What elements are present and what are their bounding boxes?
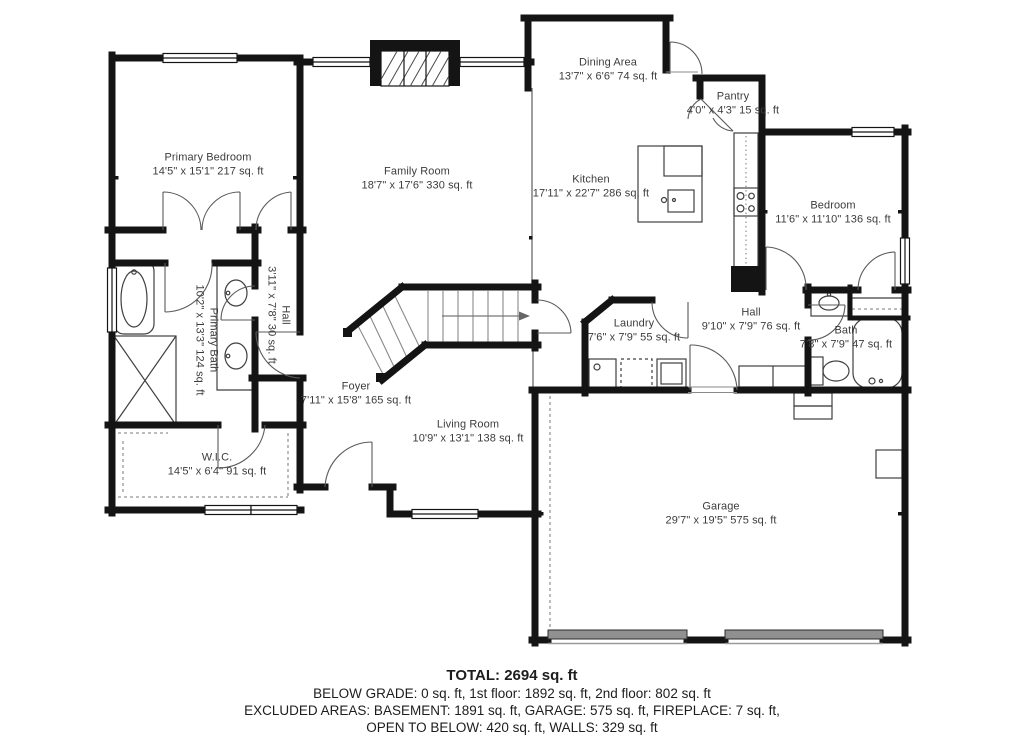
room-dims: 17'11" x 22'7" 286 sq. ft bbox=[533, 187, 649, 201]
room-label-hall-left: Hall 3'11" x 7'8" 30 sq. ft bbox=[265, 266, 292, 364]
fireplace-icon bbox=[370, 40, 466, 90]
room-dims: 4'0" x 4'3" 15 sq. ft bbox=[687, 104, 779, 118]
hall-bench-icon bbox=[739, 366, 807, 387]
room-dims: 9'10" x 7'9" 76 sq. ft bbox=[702, 320, 801, 334]
room-label-foyer: Foyer 7'11" x 15'8" 165 sq. ft bbox=[301, 381, 411, 408]
floorplan-page: Dining Area 13'7" x 6'6" 74 sq. ft Pantr… bbox=[0, 0, 1024, 738]
room-label-primary-bath: Primary Bath 10'2" x 13'3" 124 sq. ft bbox=[193, 284, 220, 395]
stair-wall-stub bbox=[343, 328, 352, 337]
room-dims: 18'7" x 17'6" 330 sq. ft bbox=[361, 179, 472, 193]
door-arc bbox=[221, 286, 255, 320]
room-name: Primary Bedroom bbox=[152, 152, 263, 166]
room-name: Foyer bbox=[301, 381, 411, 395]
room-label-bedroom: Bedroom 11'6" x 11'10" 136 sq. ft bbox=[775, 200, 891, 227]
door-arc bbox=[325, 442, 372, 487]
window-icon bbox=[108, 268, 117, 332]
window-icon bbox=[901, 238, 910, 284]
door-arc bbox=[163, 192, 201, 230]
window-icon bbox=[251, 506, 297, 515]
shower-icon bbox=[114, 336, 176, 425]
room-name: W.I.C. bbox=[168, 452, 267, 466]
door-arc bbox=[690, 345, 737, 390]
stove-icon bbox=[734, 188, 758, 216]
room-dims: 11'6" x 11'10" 136 sq. ft bbox=[775, 213, 891, 227]
room-name: Laundry bbox=[588, 318, 680, 332]
room-label-laundry: Laundry 7'6" x 7'9" 55 sq. ft bbox=[588, 318, 680, 345]
laundry-tub-icon bbox=[621, 359, 652, 388]
room-label-family-room: Family Room 18'7" x 17'6" 330 sq. ft bbox=[361, 166, 472, 193]
room-dims: 10'2" x 13'3" 124 sq. ft bbox=[193, 284, 207, 395]
room-name: Garage bbox=[665, 501, 776, 515]
room-dims: 14'5" x 6'4" 91 sq. ft bbox=[168, 465, 267, 479]
room-name: Kitchen bbox=[533, 174, 649, 188]
room-label-primary-bedroom: Primary Bedroom 14'5" x 15'1" 217 sq. ft bbox=[152, 152, 263, 179]
kitchen-wall-block bbox=[731, 266, 765, 292]
room-label-living-room: Living Room 10'9" x 13'1" 138 sq. ft bbox=[412, 419, 523, 446]
room-label-wic: W.I.C. 14'5" x 6'4" 91 sq. ft bbox=[168, 452, 267, 479]
garage-steps-icon bbox=[794, 393, 832, 419]
garage-door-icon bbox=[548, 630, 687, 639]
room-dims: 7'11" x 15'8" 165 sq. ft bbox=[301, 394, 411, 408]
utility-box-icon bbox=[876, 450, 902, 478]
room-label-bath: Bath 7'8" x 7'9" 47 sq. ft bbox=[800, 325, 892, 352]
staircase-direction-arrow bbox=[442, 312, 530, 321]
double-vanity-icon bbox=[217, 263, 255, 390]
door-arc bbox=[766, 247, 806, 290]
room-label-kitchen: Kitchen 17'11" x 22'7" 286 sq. ft bbox=[533, 174, 649, 201]
door-swings bbox=[163, 42, 895, 487]
room-name: Bath bbox=[800, 325, 892, 339]
washer-icon bbox=[589, 359, 616, 388]
area-summary: TOTAL: 2694 sq. ft BELOW GRADE: 0 sq. ft… bbox=[0, 666, 1024, 736]
room-name: Dining Area bbox=[559, 57, 658, 71]
summary-line-2: EXCLUDED AREAS: BASEMENT: 1891 sq. ft, G… bbox=[0, 702, 1024, 719]
room-name: Hall bbox=[702, 307, 801, 321]
floorplan-drawing bbox=[0, 0, 1024, 738]
door-arc bbox=[670, 42, 702, 74]
toilet-icon bbox=[810, 357, 849, 385]
room-dims: 10'9" x 13'1" 138 sq. ft bbox=[412, 432, 523, 446]
door-arc bbox=[256, 192, 291, 230]
room-name: Hall bbox=[278, 266, 292, 364]
room-dims: 7'8" x 7'9" 47 sq. ft bbox=[800, 338, 892, 352]
room-label-dining-area: Dining Area 13'7" x 6'6" 74 sq. ft bbox=[559, 57, 658, 84]
room-label-hall: Hall 9'10" x 7'9" 76 sq. ft bbox=[702, 307, 801, 334]
room-name: Living Room bbox=[412, 419, 523, 433]
door-arc bbox=[202, 192, 240, 230]
room-dims: 3'11" x 7'8" 30 sq. ft bbox=[265, 266, 279, 364]
room-name: Family Room bbox=[361, 166, 472, 180]
summary-total: TOTAL: 2694 sq. ft bbox=[0, 666, 1024, 685]
room-dims: 29'7" x 19'5" 575 sq. ft bbox=[665, 514, 776, 528]
room-name: Primary Bath bbox=[206, 284, 220, 395]
door-arc bbox=[537, 300, 571, 333]
room-dims: 14'5" x 15'1" 217 sq. ft bbox=[152, 165, 263, 179]
door-arc bbox=[858, 252, 895, 290]
summary-line-1: BELOW GRADE: 0 sq. ft, 1st floor: 1892 s… bbox=[0, 685, 1024, 702]
summary-line-3: OPEN TO BELOW: 420 sq. ft, WALLS: 329 sq… bbox=[0, 719, 1024, 736]
window-icon bbox=[852, 128, 894, 137]
room-name: Bedroom bbox=[775, 200, 891, 214]
window-icon bbox=[163, 54, 237, 63]
room-dims: 13'7" x 6'6" 74 sq. ft bbox=[559, 70, 658, 84]
room-label-garage: Garage 29'7" x 19'5" 575 sq. ft bbox=[665, 501, 776, 528]
bathtub-primary-icon bbox=[114, 261, 154, 334]
room-name: Pantry bbox=[687, 91, 779, 105]
window-icon bbox=[412, 510, 478, 519]
room-dims: 7'6" x 7'9" 55 sq. ft bbox=[588, 331, 680, 345]
garage-door-icon bbox=[725, 630, 883, 639]
window-icon bbox=[460, 58, 524, 67]
window-icon bbox=[205, 506, 251, 515]
window-icon bbox=[313, 58, 370, 67]
dryer-icon bbox=[657, 359, 686, 388]
room-label-pantry: Pantry 4'0" x 4'3" 15 sq. ft bbox=[687, 91, 779, 118]
